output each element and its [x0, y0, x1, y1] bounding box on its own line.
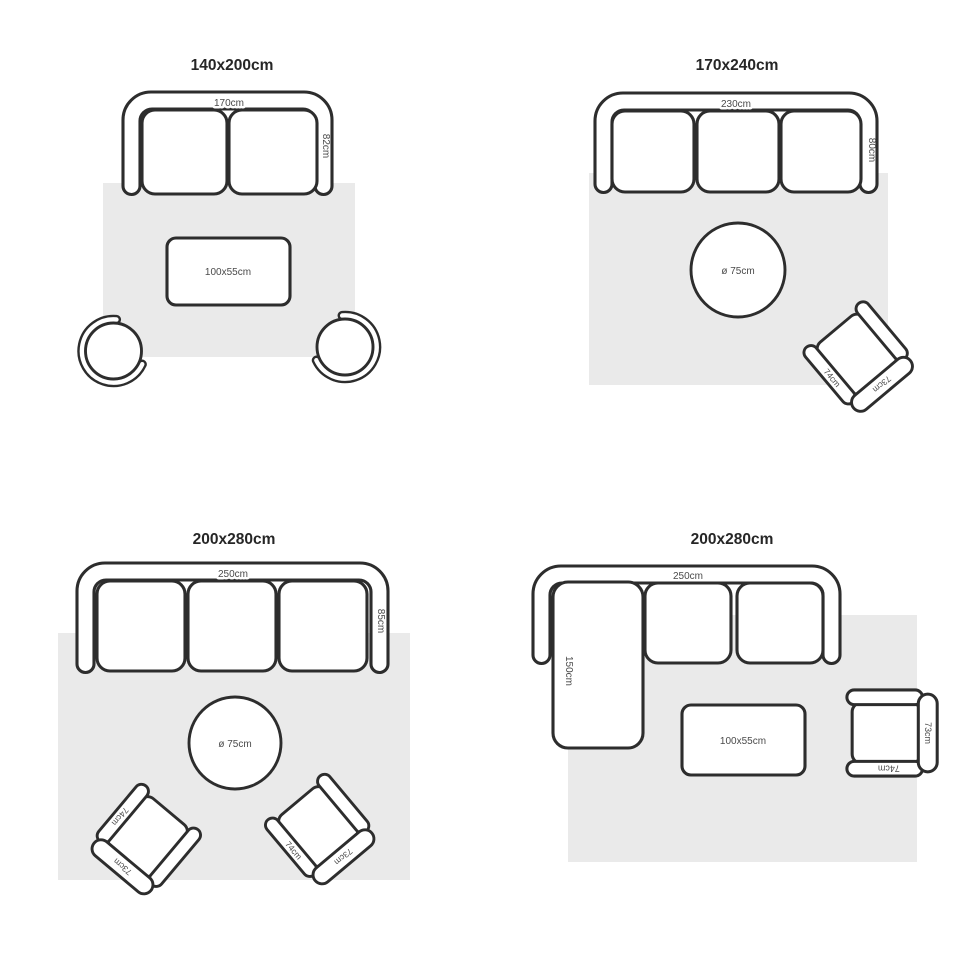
sofa-2seat: 170cm 82cm: [123, 92, 332, 195]
layout-title: 200x280cm: [691, 531, 774, 548]
sofa-cushion: [737, 583, 823, 663]
round-table: ø 75cm: [691, 223, 785, 317]
sofa-cushion: [229, 110, 317, 194]
sofa-width-label: 170cm: [214, 98, 244, 109]
sofa-depth-label: 82cm: [320, 134, 331, 158]
sofa-cushion: [612, 111, 694, 192]
table-size-label: ø 75cm: [721, 266, 754, 277]
armchair: 74cm 73cm: [847, 690, 937, 776]
layout-title: 170x240cm: [696, 57, 779, 74]
table-size-label: ø 75cm: [218, 739, 251, 750]
sofa-width-label: 230cm: [721, 99, 751, 110]
sofa-chaise-label: 150cm: [563, 656, 574, 686]
sofa-cushion: [188, 581, 276, 671]
armchair-right-arm: [847, 690, 923, 705]
armchair-back-label: 73cm: [923, 722, 933, 744]
sofa-depth-label: 85cm: [375, 609, 386, 633]
sofa-width-label: 250cm: [673, 571, 703, 582]
sofa-width-label: 250cm: [218, 569, 248, 580]
sofa-cushion: [645, 583, 731, 663]
table-size-label: 100x55cm: [720, 736, 766, 747]
chair-seat: [86, 323, 142, 379]
layout-title: 200x280cm: [193, 531, 276, 548]
layout-140x200: 140x200cm 170cm 82cm 100x55cm: [0, 0, 485, 485]
armchair-seat: [852, 703, 920, 764]
table-size-label: 100x55cm: [205, 267, 251, 278]
coffee-table: 100x55cm: [167, 238, 290, 305]
sofa-cushion: [279, 581, 367, 671]
tub-chair-right: [317, 315, 377, 378]
round-table: ø 75cm: [189, 697, 281, 789]
rug-size-guide: 140x200cm 170cm 82cm 100x55cm 170x240cm: [0, 0, 970, 970]
armchair-arm-label: 74cm: [878, 764, 900, 774]
layout-200x280-b: 200x280cm 250cm 150cm 100x55cm 74cm 73cm: [485, 485, 970, 970]
sofa-3seat: 250cm 85cm: [77, 563, 388, 673]
sofa-cushion: [697, 111, 779, 192]
sofa-cushion: [781, 111, 861, 192]
layout-200x280-a: 200x280cm 250cm 85cm ø 75cm 74cm 73cm: [0, 485, 485, 970]
layout-title: 140x200cm: [191, 57, 274, 74]
layout-170x240: 170x240cm 230cm 80cm ø 75cm 74cm 73cm: [485, 0, 970, 485]
sofa-depth-label: 80cm: [866, 138, 877, 162]
coffee-table: 100x55cm: [682, 705, 805, 775]
sofa-cushion: [97, 581, 185, 671]
chair-seat: [317, 319, 373, 375]
sofa-cushion: [142, 110, 227, 194]
sofa-3seat: 230cm 80cm: [595, 93, 877, 193]
